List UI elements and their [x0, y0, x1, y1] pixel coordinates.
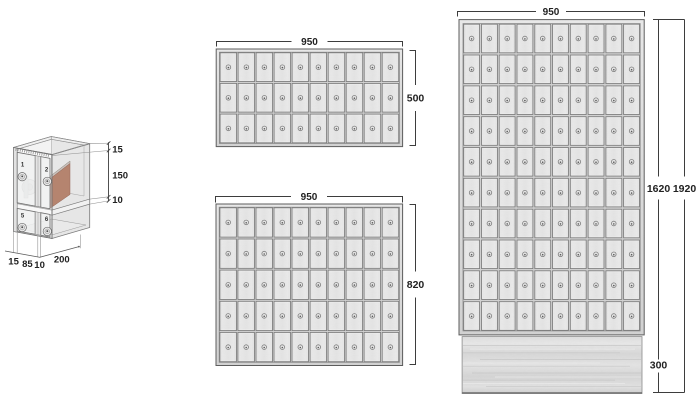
svg-text:200: 200 — [54, 255, 70, 266]
svg-text:85: 85 — [22, 259, 33, 270]
svg-text:10: 10 — [34, 260, 45, 271]
svg-text:820: 820 — [407, 279, 425, 291]
svg-text:500: 500 — [407, 93, 425, 105]
svg-text:10: 10 — [112, 195, 123, 206]
svg-text:15: 15 — [112, 145, 123, 156]
svg-text:15: 15 — [8, 256, 19, 267]
svg-text:300: 300 — [650, 360, 668, 372]
svg-text:950: 950 — [543, 7, 560, 18]
svg-text:950: 950 — [301, 37, 318, 48]
svg-text:1920: 1920 — [673, 183, 697, 195]
svg-text:1620: 1620 — [647, 183, 671, 195]
svg-text:950: 950 — [301, 192, 318, 203]
svg-text:150: 150 — [112, 170, 128, 181]
